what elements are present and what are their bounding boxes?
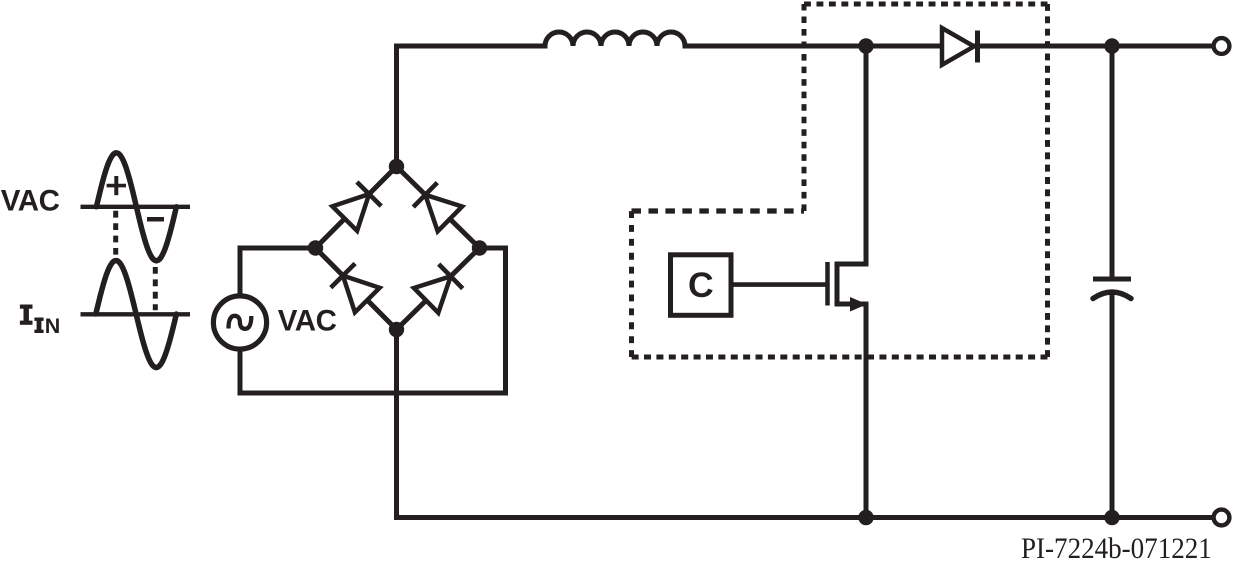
svg-text:C: C (688, 265, 714, 305)
svg-text:N: N (45, 314, 61, 338)
svg-text:VAC: VAC (1, 185, 60, 218)
svg-text:PI-7224b-071221: PI-7224b-071221 (1021, 533, 1212, 566)
svg-text:VAC: VAC (278, 305, 337, 338)
